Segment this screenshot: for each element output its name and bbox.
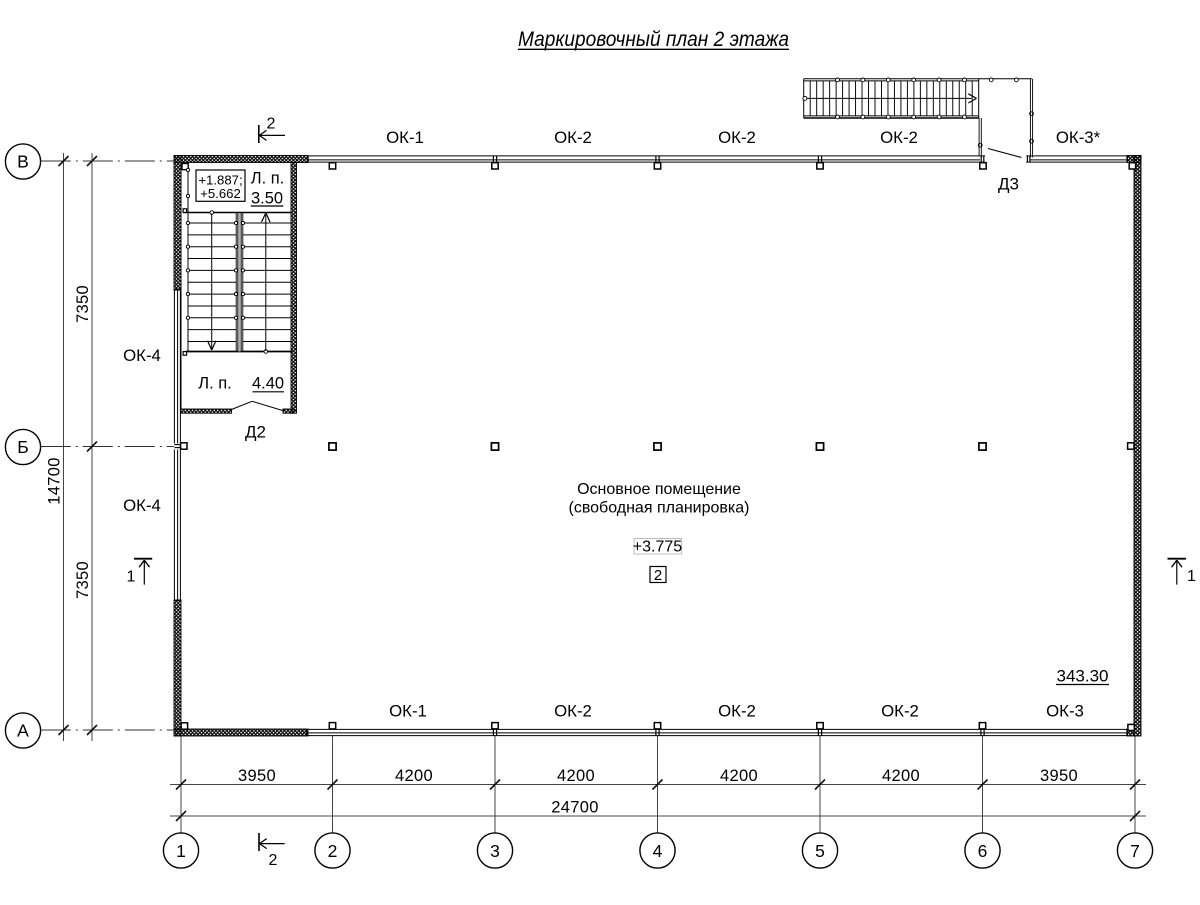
svg-text:ОК-2: ОК-2 bbox=[880, 128, 918, 147]
svg-text:3.50: 3.50 bbox=[251, 190, 283, 208]
svg-text:14700: 14700 bbox=[46, 457, 64, 504]
svg-text:6: 6 bbox=[978, 841, 988, 861]
svg-text:2: 2 bbox=[654, 567, 662, 584]
svg-text:(свободная планировка): (свободная планировка) bbox=[569, 500, 750, 517]
svg-text:2: 2 bbox=[267, 116, 276, 133]
svg-text:3: 3 bbox=[490, 841, 500, 861]
svg-text:7350: 7350 bbox=[74, 561, 92, 599]
svg-text:ОК-2: ОК-2 bbox=[881, 702, 919, 721]
svg-text:3950: 3950 bbox=[1040, 767, 1078, 785]
svg-text:А: А bbox=[17, 721, 29, 741]
svg-text:2: 2 bbox=[328, 841, 338, 861]
svg-text:ОК-4: ОК-4 bbox=[123, 496, 161, 515]
svg-text:Маркировочный план 2 этажа: Маркировочный план 2 этажа bbox=[518, 27, 789, 51]
svg-text:4200: 4200 bbox=[395, 767, 433, 785]
svg-text:ОК-2: ОК-2 bbox=[554, 128, 592, 147]
svg-text:1: 1 bbox=[127, 569, 136, 586]
svg-text:4: 4 bbox=[653, 841, 663, 861]
svg-text:7350: 7350 bbox=[74, 285, 92, 323]
svg-text:7: 7 bbox=[1130, 841, 1140, 861]
svg-text:4200: 4200 bbox=[720, 767, 758, 785]
svg-text:Б: Б bbox=[17, 437, 28, 457]
svg-text:2: 2 bbox=[269, 852, 278, 869]
svg-text:343.30: 343.30 bbox=[1057, 667, 1109, 686]
svg-text:4200: 4200 bbox=[557, 767, 595, 785]
svg-text:+5.662: +5.662 bbox=[200, 186, 241, 201]
svg-text:ОК-1: ОК-1 bbox=[386, 128, 424, 147]
svg-text:Л. п.: Л. п. bbox=[251, 170, 285, 188]
svg-text:ОК-3*: ОК-3* bbox=[1056, 128, 1101, 147]
svg-text:1: 1 bbox=[176, 841, 186, 861]
svg-text:4.40: 4.40 bbox=[252, 374, 284, 392]
svg-text:24700: 24700 bbox=[551, 799, 598, 817]
svg-text:ОК-2: ОК-2 bbox=[718, 128, 756, 147]
svg-text:+3.775: +3.775 bbox=[633, 539, 682, 556]
svg-text:ОК-2: ОК-2 bbox=[554, 702, 592, 721]
svg-text:ОК-1: ОК-1 bbox=[389, 702, 427, 721]
svg-text:4200: 4200 bbox=[882, 767, 920, 785]
svg-text:1: 1 bbox=[1187, 568, 1196, 585]
svg-text:5: 5 bbox=[815, 841, 825, 861]
svg-text:ОК-3: ОК-3 bbox=[1046, 702, 1084, 721]
svg-text:ОК-2: ОК-2 bbox=[718, 702, 756, 721]
svg-text:Л. п.: Л. п. bbox=[198, 374, 232, 392]
svg-text:В: В bbox=[17, 152, 29, 172]
svg-text:3950: 3950 bbox=[238, 767, 276, 785]
svg-text:ОК-4: ОК-4 bbox=[123, 346, 161, 365]
svg-text:Д3: Д3 bbox=[998, 175, 1019, 194]
svg-text:Д2: Д2 bbox=[245, 423, 266, 442]
svg-text:Основное помещение: Основное помещение bbox=[577, 481, 741, 498]
